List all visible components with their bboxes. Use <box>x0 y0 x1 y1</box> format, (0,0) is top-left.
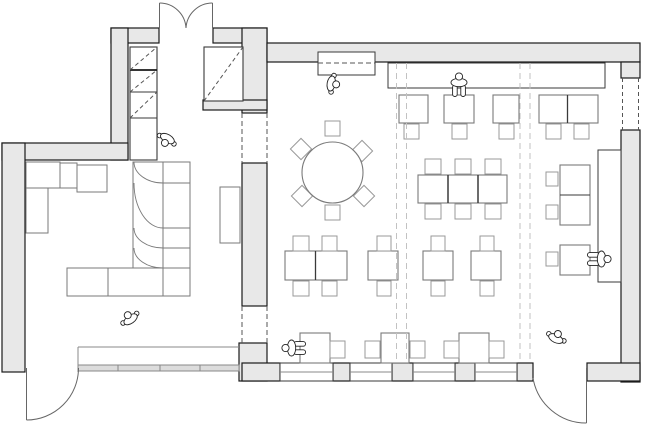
chair <box>322 281 337 296</box>
chair <box>480 236 494 251</box>
chair <box>480 281 494 296</box>
chair <box>425 159 441 174</box>
chair <box>485 159 501 174</box>
chair <box>425 204 441 219</box>
chair <box>410 341 425 358</box>
south-wall-pier-4 <box>455 363 475 381</box>
table-row1-double <box>539 95 598 123</box>
floor-plan-canvas <box>0 0 652 435</box>
chair <box>431 281 445 296</box>
table-south-2 <box>381 333 409 363</box>
kitchen-counter-1 <box>26 162 60 188</box>
south-wall-pier-5 <box>517 363 533 381</box>
south-wall-pier-2 <box>333 363 350 381</box>
cabinet-bank-back-column <box>163 162 190 268</box>
kitchen-counter-south <box>67 268 190 296</box>
service-room-window-glazing <box>78 365 239 371</box>
south-wall-pier-6 <box>587 363 640 381</box>
service-door-swing <box>27 368 79 420</box>
table-row1-2 <box>444 95 474 123</box>
chair <box>452 124 467 139</box>
person-corridor-walking <box>154 130 179 152</box>
chair <box>485 204 501 219</box>
table-row3-2 <box>423 251 453 280</box>
table-center-long <box>418 175 507 203</box>
chair <box>377 236 391 251</box>
wall-cabinet-corridor <box>220 187 240 243</box>
kitchen-counter-west <box>26 188 48 233</box>
east-exterior-wall <box>621 130 640 382</box>
kitchen-counter-3 <box>77 165 107 192</box>
table-south-1 <box>300 333 330 363</box>
table-row3-1 <box>368 251 398 280</box>
vestibule-wardrobe <box>130 47 157 160</box>
chair <box>377 281 391 296</box>
south-wall-pier-3 <box>392 363 413 381</box>
table-south-3 <box>459 333 489 363</box>
cabinet-bank-door-column <box>133 162 163 268</box>
south-wall-pier-1 <box>242 363 280 381</box>
chair <box>455 159 471 174</box>
chair <box>431 236 445 251</box>
table-row3-3 <box>471 251 501 280</box>
north-banquette-bench <box>388 63 605 88</box>
chair <box>325 121 340 136</box>
east-wall-upper-block <box>621 62 640 78</box>
vestibule-west-wall <box>111 28 128 160</box>
chair <box>365 341 380 358</box>
chair <box>293 236 309 251</box>
chair <box>444 341 459 358</box>
chair <box>330 341 345 358</box>
dining-door-swing <box>533 378 587 423</box>
person-walking-southeast <box>544 326 569 346</box>
west-exterior-wall <box>2 143 25 372</box>
chair <box>293 281 309 296</box>
chair <box>455 204 471 219</box>
person-kitchen-walking <box>117 306 142 328</box>
partition-wall-middle <box>242 163 267 306</box>
person-at-pass-through <box>325 72 341 95</box>
table-row1-1 <box>399 95 428 123</box>
floor-plan <box>0 0 652 435</box>
kitchen-counter-2 <box>60 163 77 188</box>
round-table <box>302 142 363 203</box>
chair <box>574 124 589 139</box>
chair <box>499 124 514 139</box>
chair <box>489 341 504 358</box>
chair <box>546 205 558 219</box>
chair <box>322 236 337 251</box>
chair <box>546 124 561 139</box>
entrance-door-swing <box>186 3 213 28</box>
entrance-door-swing <box>160 3 187 28</box>
chair <box>546 172 558 186</box>
table-east-single <box>560 245 590 275</box>
chair <box>546 252 558 266</box>
table-row1-3 <box>493 95 519 123</box>
chair <box>325 205 340 220</box>
